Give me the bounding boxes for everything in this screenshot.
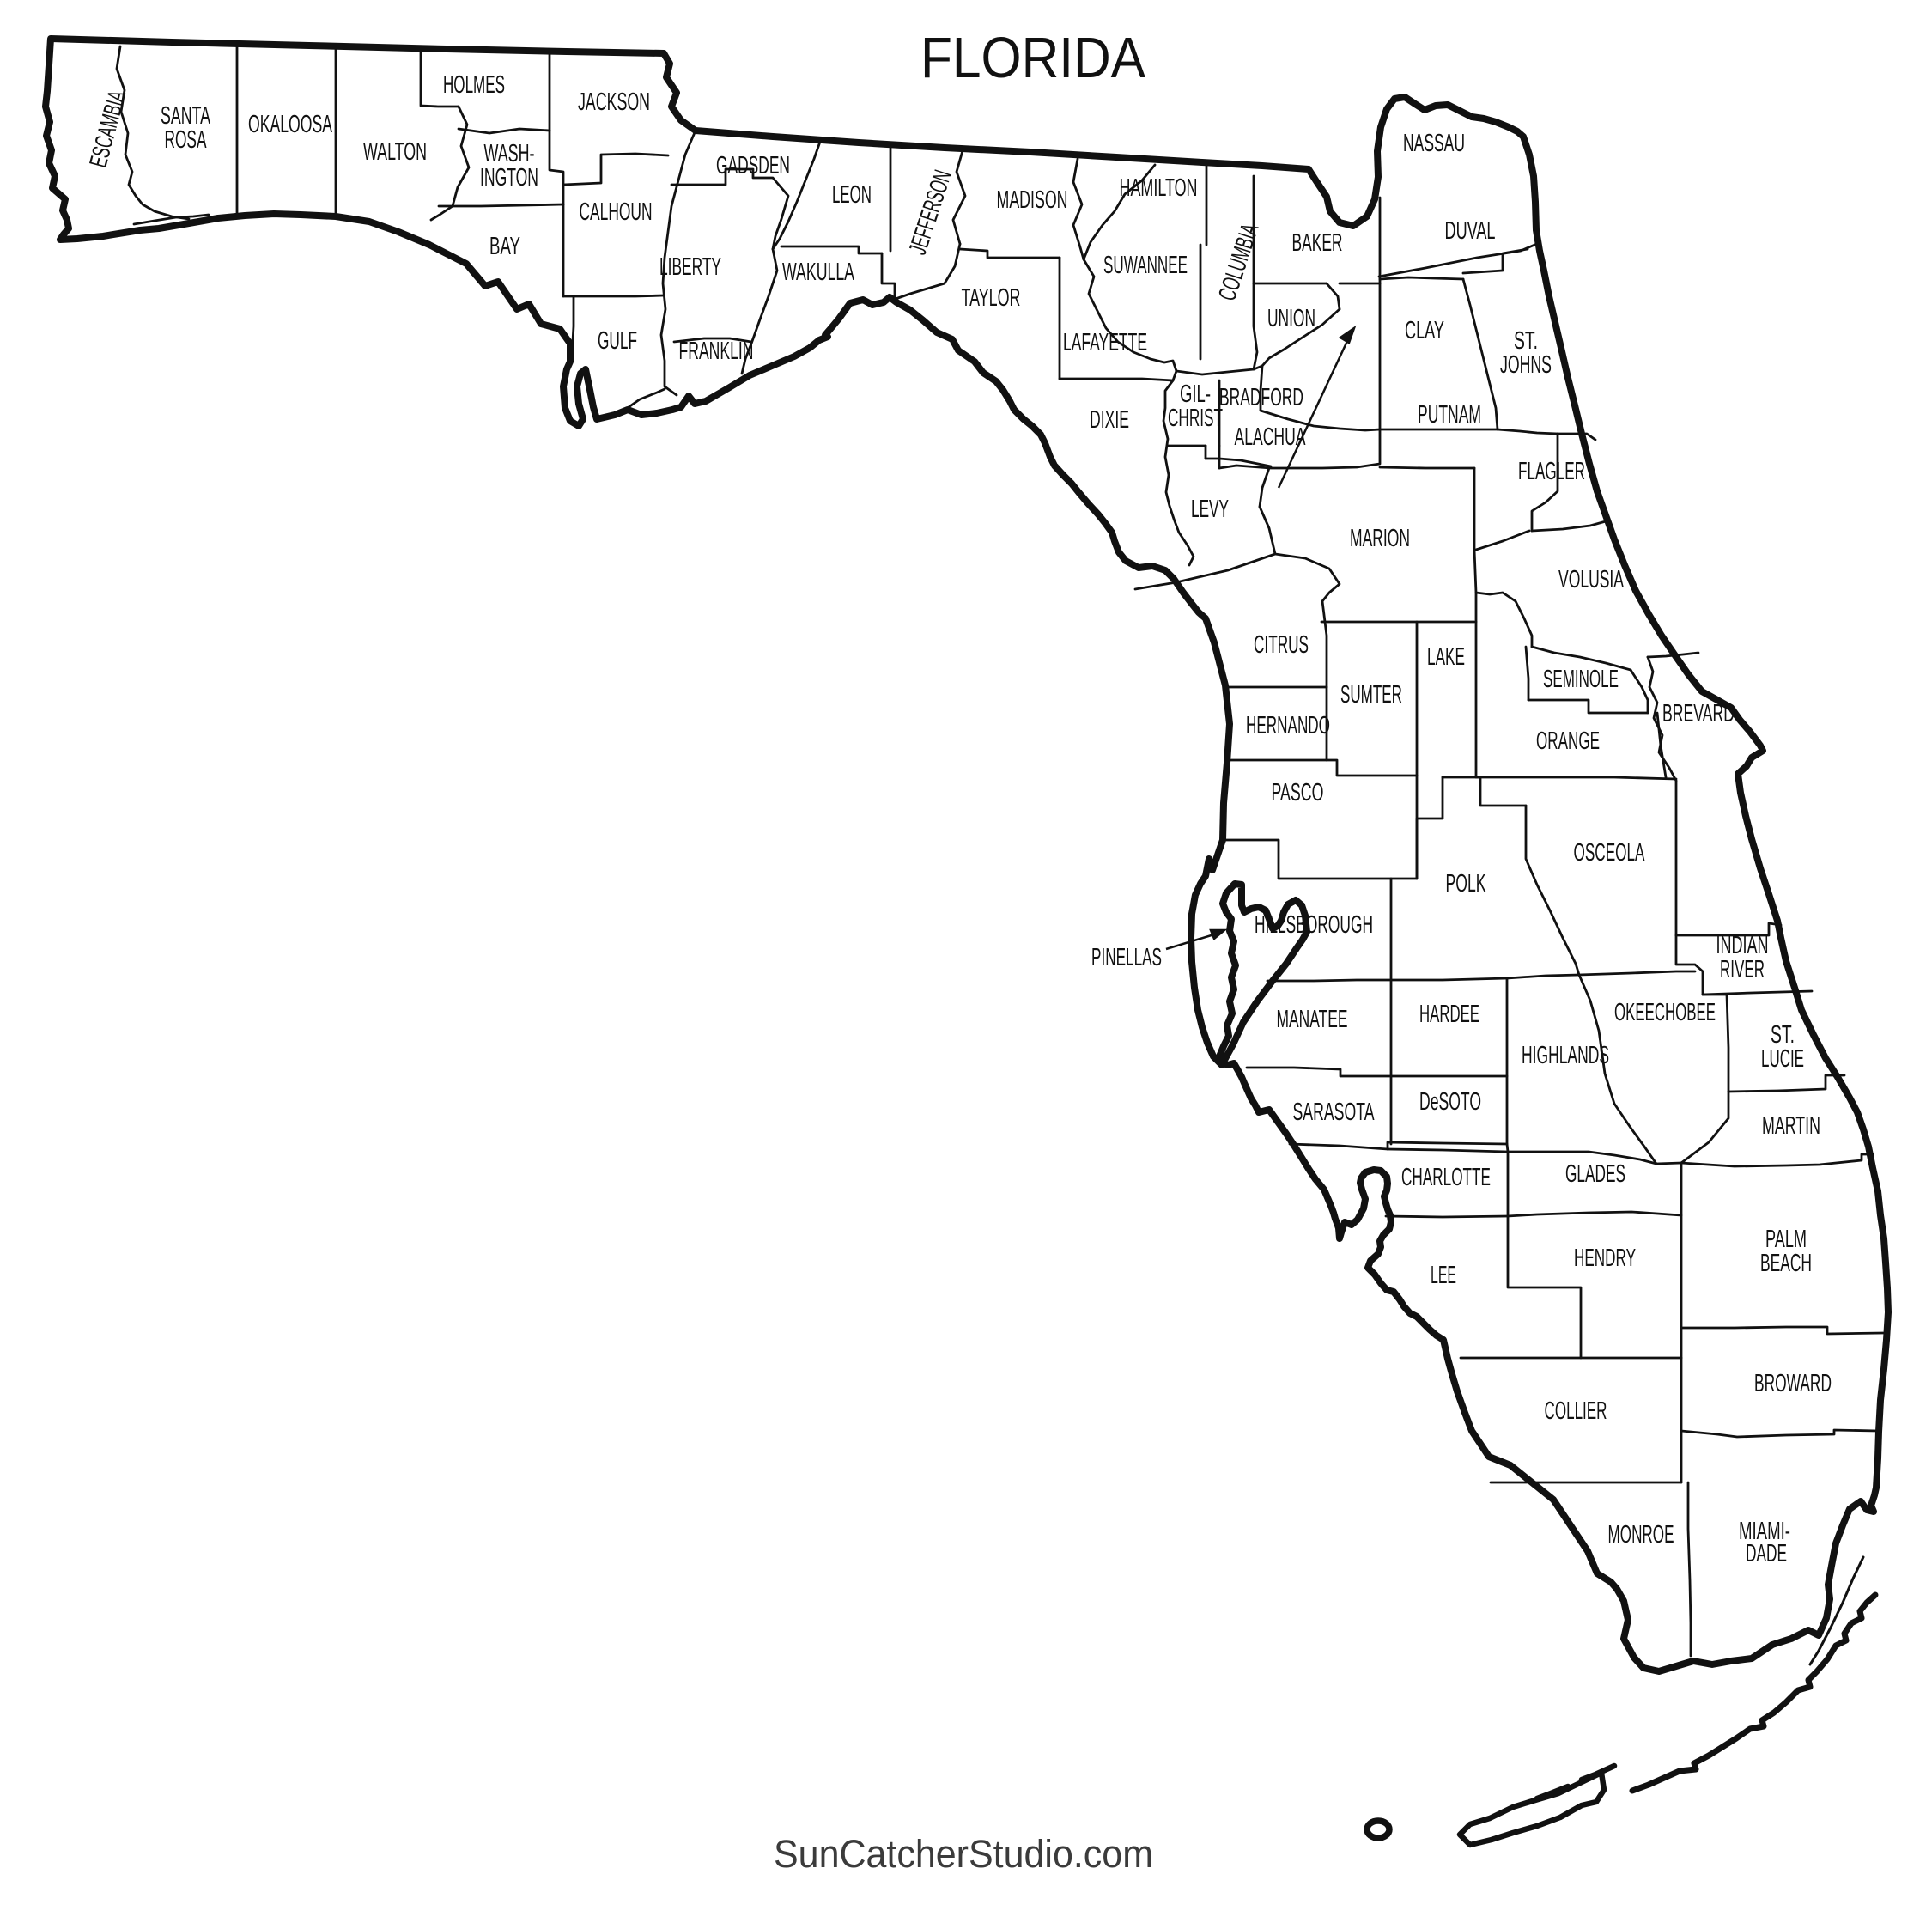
svg-text:MANATEE: MANATEE [1277, 1006, 1348, 1033]
svg-text:WAKULLA: WAKULLA [782, 259, 854, 286]
svg-text:MARTIN: MARTIN [1762, 1112, 1820, 1140]
svg-text:GLADES: GLADES [1565, 1160, 1625, 1188]
svg-text:OKALOOSA: OKALOOSA [248, 111, 332, 138]
svg-text:BRADFORD: BRADFORD [1219, 384, 1303, 411]
svg-text:MADISON: MADISON [997, 186, 1068, 214]
svg-text:ORANGE: ORANGE [1536, 727, 1600, 755]
svg-text:ALACHUA: ALACHUA [1235, 423, 1306, 451]
svg-text:LAFAYETTE: LAFAYETTE [1063, 329, 1147, 356]
svg-text:INGTON: INGTON [480, 164, 538, 192]
svg-text:GADSDEN: GADSDEN [716, 152, 790, 180]
svg-text:SUMTER: SUMTER [1340, 681, 1402, 709]
svg-text:HARDEE: HARDEE [1419, 1001, 1479, 1028]
svg-text:PUTNAM: PUTNAM [1418, 401, 1481, 429]
svg-text:BAY: BAY [489, 233, 520, 260]
svg-text:OSCEOLA: OSCEOLA [1574, 839, 1645, 867]
svg-text:SunCatcherStudio.com: SunCatcherStudio.com [774, 1832, 1153, 1876]
svg-text:CITRUS: CITRUS [1254, 631, 1309, 659]
svg-text:HILLSBOROUGH: HILLSBOROUGH [1255, 911, 1373, 939]
svg-text:FLAGLER: FLAGLER [1518, 458, 1585, 485]
svg-text:BREVARD: BREVARD [1662, 700, 1735, 727]
svg-text:FRANKLIN: FRANKLIN [679, 338, 754, 365]
svg-text:WALTON: WALTON [363, 138, 427, 166]
svg-text:CHRIST: CHRIST [1168, 405, 1223, 432]
svg-text:HAMILTON: HAMILTON [1120, 174, 1198, 202]
svg-text:CHARLOTTE: CHARLOTTE [1401, 1164, 1491, 1191]
svg-text:HENDRY: HENDRY [1574, 1245, 1636, 1272]
svg-text:BEACH: BEACH [1760, 1250, 1812, 1277]
svg-text:BROWARD: BROWARD [1754, 1370, 1832, 1397]
svg-text:LIBERTY: LIBERTY [659, 253, 721, 281]
svg-text:HOLMES: HOLMES [443, 71, 505, 99]
svg-text:POLK: POLK [1446, 870, 1486, 898]
svg-text:COLLIER: COLLIER [1545, 1397, 1607, 1425]
svg-text:UNION: UNION [1267, 305, 1315, 332]
svg-text:LEVY: LEVY [1191, 496, 1229, 523]
svg-text:DIXIE: DIXIE [1090, 406, 1129, 434]
svg-text:VOLUSIA: VOLUSIA [1558, 566, 1624, 593]
svg-text:JOHNS: JOHNS [1500, 351, 1552, 379]
svg-text:OKEECHOBEE: OKEECHOBEE [1614, 999, 1716, 1026]
svg-text:PINELLAS: PINELLAS [1091, 944, 1162, 971]
svg-text:DeSOTO: DeSOTO [1419, 1088, 1481, 1116]
svg-text:SUWANNEE: SUWANNEE [1103, 252, 1188, 279]
svg-text:DUVAL: DUVAL [1445, 217, 1496, 245]
svg-text:SEMINOLE: SEMINOLE [1543, 666, 1619, 693]
svg-text:CLAY: CLAY [1405, 317, 1444, 344]
svg-text:DADE: DADE [1746, 1540, 1787, 1567]
svg-text:LEE: LEE [1431, 1262, 1456, 1289]
svg-text:CALHOUN: CALHOUN [580, 198, 653, 226]
svg-text:JACKSON: JACKSON [578, 88, 650, 116]
svg-text:SARASOTA: SARASOTA [1293, 1098, 1375, 1126]
svg-text:MONROE: MONROE [1608, 1521, 1674, 1549]
svg-text:NASSAU: NASSAU [1403, 130, 1465, 157]
svg-text:HERNANDO: HERNANDO [1246, 712, 1330, 739]
svg-text:MARION: MARION [1350, 525, 1410, 552]
svg-text:TAYLOR: TAYLOR [962, 284, 1021, 312]
svg-text:LUCIE: LUCIE [1761, 1045, 1804, 1073]
svg-text:LAKE: LAKE [1427, 643, 1465, 671]
svg-text:LEON: LEON [832, 181, 872, 209]
svg-text:FLORIDA: FLORIDA [920, 26, 1145, 90]
svg-text:HIGHLANDS: HIGHLANDS [1522, 1042, 1609, 1069]
svg-text:GULF: GULF [598, 327, 637, 355]
svg-text:RIVER: RIVER [1720, 956, 1765, 983]
svg-text:PASCO: PASCO [1272, 779, 1324, 806]
svg-text:ROSA: ROSA [165, 126, 207, 154]
svg-text:BAKER: BAKER [1292, 229, 1343, 257]
